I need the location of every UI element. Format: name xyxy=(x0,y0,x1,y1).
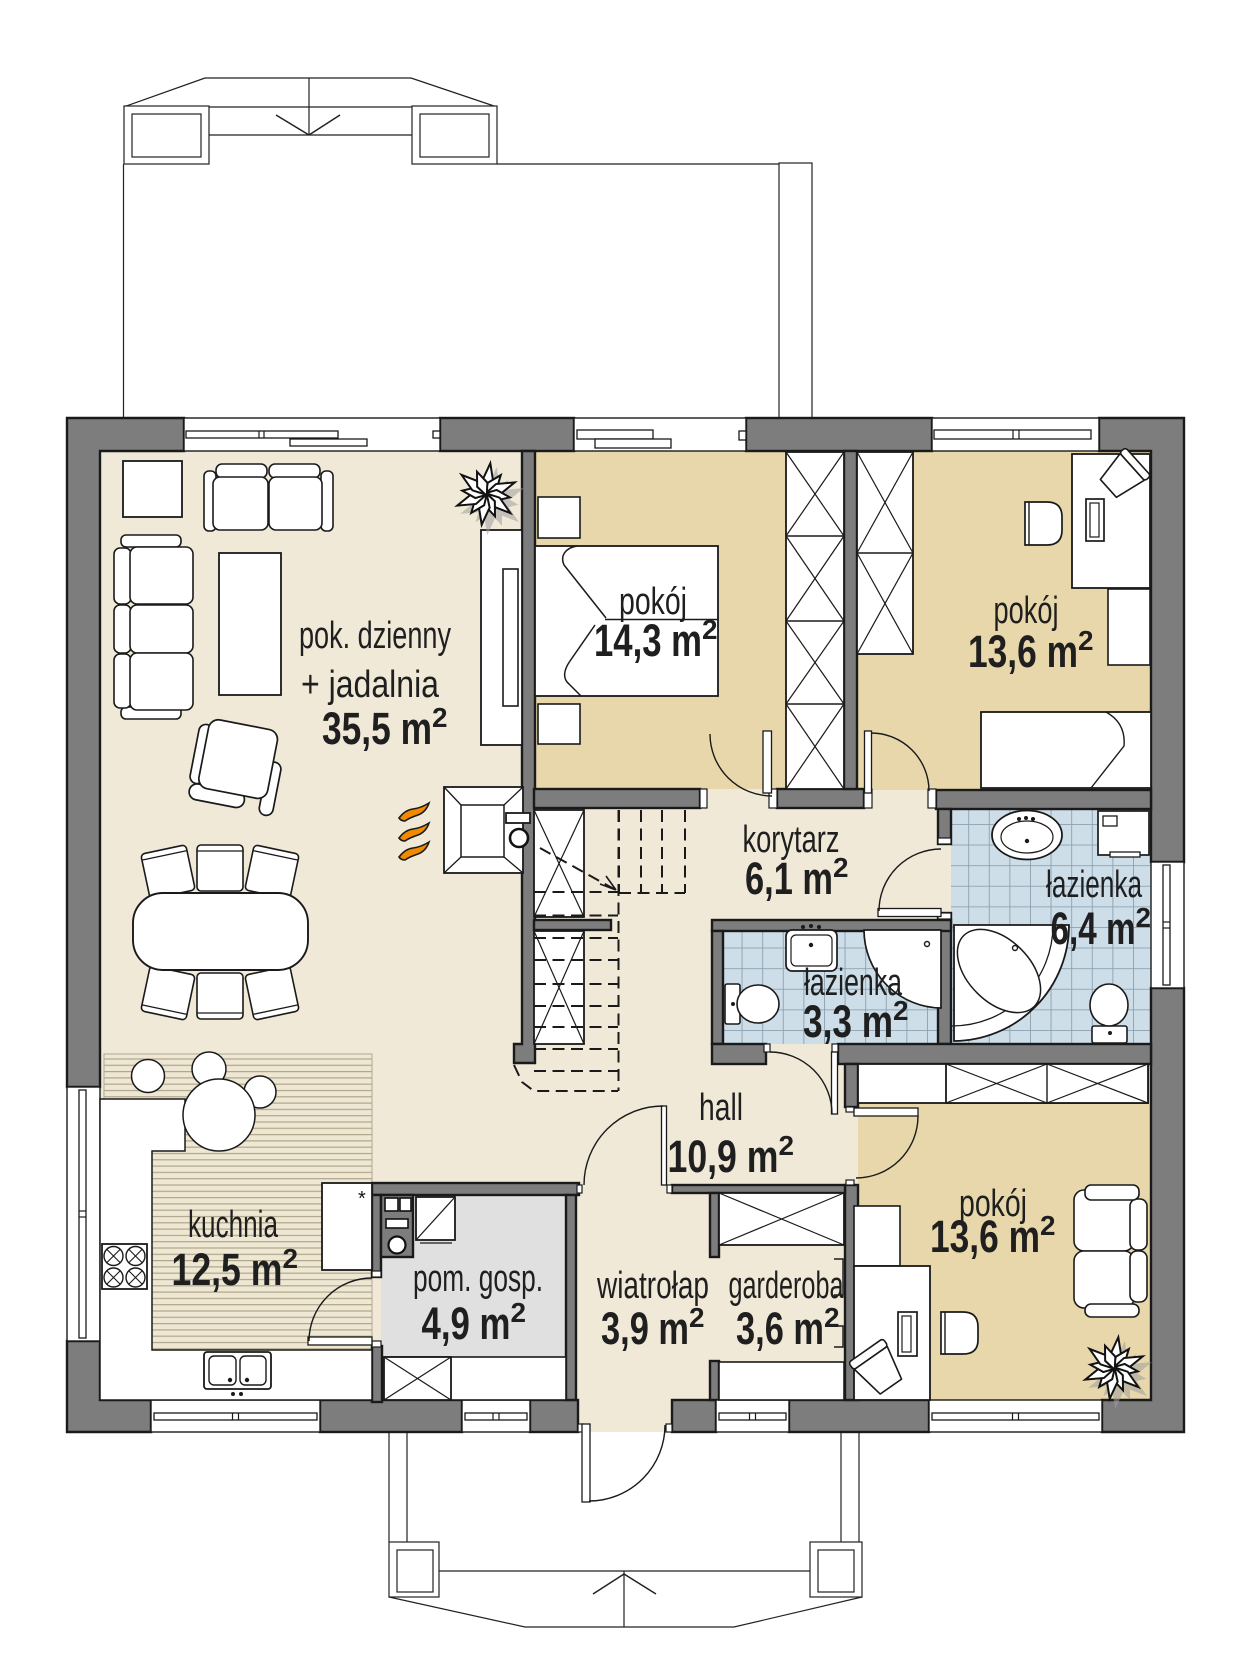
svg-text:+ jadalnia: + jadalnia xyxy=(301,664,440,706)
svg-text:kuchnia: kuchnia xyxy=(188,1204,279,1246)
svg-text:*: * xyxy=(358,1188,366,1210)
svg-text:pom. gosp.: pom. gosp. xyxy=(413,1258,543,1300)
svg-text:4,9 m2: 4,9 m2 xyxy=(422,1297,527,1349)
svg-text:łazienka: łazienka xyxy=(1046,864,1143,906)
svg-text:13,6 m2: 13,6 m2 xyxy=(968,625,1094,677)
svg-text:hall: hall xyxy=(699,1087,743,1129)
svg-text:10,9 m2: 10,9 m2 xyxy=(668,1130,795,1182)
svg-text:wiatrołap: wiatrołap xyxy=(596,1265,709,1307)
svg-text:12,5 m2: 12,5 m2 xyxy=(172,1243,299,1295)
svg-text:3,3 m2: 3,3 m2 xyxy=(803,995,909,1047)
svg-text:14,3 m2: 14,3 m2 xyxy=(594,614,718,666)
svg-text:35,5 m2: 35,5 m2 xyxy=(322,702,448,754)
svg-text:3,9 m2: 3,9 m2 xyxy=(601,1302,705,1354)
svg-text:garderoba: garderoba xyxy=(729,1265,845,1307)
svg-text:6,1 m2: 6,1 m2 xyxy=(745,852,849,904)
svg-text:13,6 m2: 13,6 m2 xyxy=(930,1210,1056,1262)
svg-text:3,6 m2: 3,6 m2 xyxy=(736,1302,840,1354)
svg-text:pok. dzienny: pok. dzienny xyxy=(299,615,451,657)
